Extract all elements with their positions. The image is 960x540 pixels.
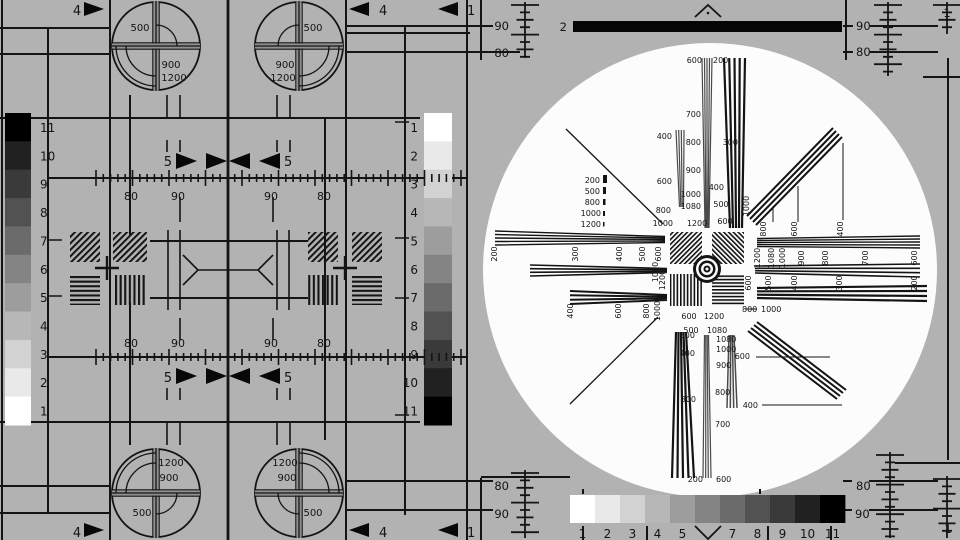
arrow-number-labels: 1 [467, 4, 475, 19]
resolution-labels-horizontal: 500 [585, 187, 600, 196]
step-label: 6 [40, 263, 48, 277]
step-label: 5 [679, 527, 687, 540]
corner-circle-labels: 500 [130, 23, 149, 34]
corner-circle-top-right [255, 1, 343, 91]
grayscale-step [695, 495, 720, 523]
mid-ruler-labels: 80 [124, 337, 138, 350]
resolution-labels-horizontal: 1000 [581, 209, 601, 218]
step-label: 11 [825, 527, 840, 540]
resolution-labels-horizontal: 400 [709, 183, 724, 192]
resolution-labels-rotated: 700 [861, 250, 870, 265]
corner-circle-labels: 900 [275, 60, 294, 71]
step-label: 8 [410, 320, 418, 334]
grayscale-step [424, 198, 452, 227]
resolution-labels-rotated: 600 [910, 250, 919, 265]
step-label: 7 [410, 291, 418, 305]
resolution-labels-horizontal: 300 [681, 395, 696, 404]
resolution-labels-rotated: 800 [759, 221, 768, 236]
center-bullseye [693, 255, 721, 283]
resolution-labels-rotated: 1200 [753, 248, 762, 268]
resolution-labels-rotated: 400 [790, 275, 799, 290]
step-label: 1 [410, 121, 418, 135]
step-label: 7 [729, 527, 737, 540]
grayscale-step [5, 312, 31, 341]
step-label: 4 [410, 206, 418, 220]
mid-ruler-labels: 90 [264, 190, 278, 203]
edge-percent-labels: 90 [494, 507, 509, 521]
grayscale-step [5, 170, 31, 199]
grayscale-step [5, 113, 31, 142]
grayscale-step [795, 495, 820, 523]
step-label: 5 [40, 291, 48, 305]
resolution-circle [483, 43, 937, 497]
edge-percent-labels: 90 [494, 19, 509, 33]
grayscale-step [424, 170, 452, 199]
resolution-labels-horizontal: 1200 [581, 220, 601, 229]
resolution-labels-rotated: 300 [571, 246, 580, 261]
mid-ruler-labels: 80 [124, 190, 138, 203]
grayscale-step [5, 283, 31, 312]
grayscale-step [770, 495, 795, 523]
step-label: 8 [40, 206, 48, 220]
resolution-labels-horizontal: 1000 [653, 219, 673, 228]
resolution-labels-horizontal: 1080 [716, 335, 736, 344]
resolution-labels-rotated: 1200 [658, 270, 667, 290]
grayscale-step [820, 495, 845, 523]
resolution-labels-rotated: 400 [836, 221, 845, 236]
resolution-labels-horizontal: 700 [686, 110, 701, 119]
arrow-number-labels: 4 [379, 4, 387, 19]
resolution-labels-rotated: 400 [615, 246, 624, 261]
grayscale-step [595, 495, 620, 523]
resolution-labels-horizontal: 600 [687, 56, 702, 65]
resolution-labels-horizontal: 600 [716, 475, 731, 484]
grayscale-step [620, 495, 645, 523]
arrow-number-labels: 4 [379, 526, 387, 540]
grayscale-step [424, 397, 452, 426]
edge-percent-labels: 90 [856, 19, 871, 33]
step-label: 8 [754, 527, 762, 540]
resolution-labels-horizontal: 500 [713, 200, 728, 209]
corner-circle-labels: 500 [132, 508, 151, 519]
mid-ruler-labels: 90 [264, 337, 278, 350]
resolution-labels-horizontal: 900 [686, 166, 701, 175]
resolution-labels-horizontal: 1080 [707, 326, 727, 335]
corner-circle-bottom-left [112, 448, 200, 538]
resolution-labels-horizontal: 800 [715, 388, 730, 397]
step-label: 2 [410, 149, 418, 163]
resolution-labels-horizontal: 800 [585, 198, 600, 207]
step-label: 10 [40, 149, 55, 163]
resolution-labels-rotated: 1000 [778, 248, 787, 268]
resolution-labels-horizontal: 400 [657, 132, 672, 141]
grayscale-step [424, 226, 452, 255]
resolution-labels-rotated: 400 [566, 303, 575, 318]
step-label: 9 [779, 527, 787, 540]
corner-circle-labels: 1200 [161, 73, 186, 84]
grayscale-step [424, 312, 452, 341]
corner-circle-labels: 1200 [158, 458, 183, 469]
resolution-labels-horizontal: 400 [743, 401, 758, 410]
arrow-number-labels: 5 [284, 155, 292, 170]
grayscale-step [5, 198, 31, 227]
grayscale-mid-wedge: 1234567891011 [403, 113, 452, 426]
resolution-labels-rotated: 800 [642, 303, 651, 318]
resolution-labels-horizontal: 400 [680, 349, 695, 358]
resolution-labels-horizontal: 600 [657, 177, 672, 186]
step-label: 11 [403, 405, 418, 419]
step-label: 11 [40, 121, 55, 135]
edge-percent-labels: 1 [943, 6, 950, 20]
resolution-labels-rotated: 500 [638, 246, 647, 261]
grayscale-step [570, 495, 595, 523]
resolution-labels-rotated: 1080 [767, 248, 776, 268]
grayscale-step [5, 368, 31, 397]
resolution-labels-horizontal: 1080 [681, 202, 701, 211]
corner-circle-labels: 1200 [272, 458, 297, 469]
resolution-labels-horizontal: 1200 [704, 312, 724, 321]
resolution-labels-rotated: 600 [744, 275, 753, 290]
resolution-labels-horizontal: 1000 [681, 190, 701, 199]
grayscale-step [5, 255, 31, 284]
mid-ruler-labels: 90 [171, 190, 185, 203]
edge-percent-labels: 80 [856, 45, 871, 59]
resolution-labels-horizontal: 800 [742, 305, 757, 314]
arrow-number-labels: 4 [73, 526, 81, 540]
edge-percent-labels: 2 [560, 20, 567, 34]
resolution-labels-rotated: 600 [654, 246, 663, 261]
corner-circle-labels: 900 [159, 473, 178, 484]
resolution-labels-horizontal: 1000 [716, 345, 736, 354]
step-label: 7 [40, 234, 48, 248]
corner-circle-labels: 500 [303, 23, 322, 34]
mid-ruler-labels: 90 [171, 337, 185, 350]
resolution-labels-horizontal: 800 [656, 206, 671, 215]
step-label: 9 [40, 178, 48, 192]
resolution-labels-horizontal: 200 [713, 56, 728, 65]
grayscale-step [424, 283, 452, 312]
resolution-labels-horizontal: 600 [681, 312, 696, 321]
edge-percent-labels: 80 [494, 479, 509, 493]
corner-circle-bottom-right [255, 448, 343, 538]
grayscale-step [424, 113, 452, 142]
resolution-labels-horizontal: 900 [716, 361, 731, 370]
corner-circle-labels: 900 [161, 60, 180, 71]
arrow-number-labels: 5 [164, 155, 172, 170]
edge-percent-labels: 80 [856, 479, 871, 493]
step-label: 4 [654, 527, 662, 540]
corner-circle-labels: 500 [303, 508, 322, 519]
resolution-labels-rotated: 200 [910, 275, 919, 290]
resolution-labels-rotated: 300 [835, 275, 844, 290]
grayscale-step [424, 141, 452, 170]
arrow-number-labels: 5 [164, 371, 172, 386]
black-reference-bar [573, 21, 842, 32]
resolution-labels-horizontal: 200 [688, 475, 703, 484]
arrow-number-labels: 1 [467, 526, 475, 540]
grayscale-step [5, 340, 31, 369]
resolution-labels-rotated: 900 [797, 250, 806, 265]
grayscale-step [424, 368, 452, 397]
step-label: 1 [40, 405, 48, 419]
resolution-labels-horizontal: 200 [585, 176, 600, 185]
resolution-labels-rotated: 800 [821, 250, 830, 265]
edge-percent-labels: 1 [944, 522, 951, 536]
grayscale-step [424, 255, 452, 284]
edge-percent-labels: 80 [494, 46, 509, 60]
corner-circle-labels: 900 [277, 473, 296, 484]
grayscale-step [670, 495, 695, 523]
step-label: 3 [629, 527, 637, 540]
mid-ruler-labels: 80 [317, 337, 331, 350]
test-pattern-svg: 1110987654321 1234567891011 123457891011… [0, 0, 960, 540]
grayscale-step [5, 226, 31, 255]
arrow-number-labels: 5 [284, 371, 292, 386]
arrow-number-labels: 4 [73, 4, 81, 19]
step-label: 2 [604, 527, 612, 540]
grayscale-step [720, 495, 745, 523]
test-pattern-screen: 1110987654321 1234567891011 123457891011… [0, 0, 960, 540]
resolution-labels-rotated: 600 [790, 221, 799, 236]
resolution-labels-rotated: 200 [490, 246, 499, 261]
grayscale-step [645, 495, 670, 523]
step-label: 10 [403, 376, 418, 390]
step-label: 6 [410, 263, 418, 277]
step-label: 4 [40, 320, 48, 334]
resolution-labels-horizontal: 600 [717, 217, 732, 226]
resolution-labels-horizontal: 700 [715, 420, 730, 429]
grayscale-step [5, 141, 31, 170]
resolution-labels-horizontal: 300 [723, 138, 738, 147]
resolution-labels-rotated: 1000 [653, 301, 662, 321]
step-label: 5 [410, 234, 418, 248]
resolution-labels-rotated: 1000 [742, 196, 751, 216]
step-label: 10 [800, 527, 815, 540]
corner-circle-top-left [112, 1, 200, 91]
corner-circle-labels: 1200 [270, 73, 295, 84]
resolution-labels-horizontal: 600 [735, 352, 750, 361]
resolution-labels-horizontal: 800 [686, 138, 701, 147]
grayscale-step [745, 495, 770, 523]
resolution-labels-horizontal: 1000 [761, 305, 781, 314]
step-label: 3 [40, 348, 48, 362]
resolution-labels-rotated: 600 [614, 303, 623, 318]
step-label: 2 [40, 376, 48, 390]
edge-percent-labels: 90 [855, 507, 870, 521]
resolution-labels-horizontal: 1200 [687, 219, 707, 228]
grayscale-step [5, 397, 31, 426]
resolution-labels-rotated: 500 [764, 275, 773, 290]
resolution-labels-horizontal: 500 [680, 331, 695, 340]
grayscale-step [424, 340, 452, 369]
mid-ruler-labels: 80 [317, 190, 331, 203]
